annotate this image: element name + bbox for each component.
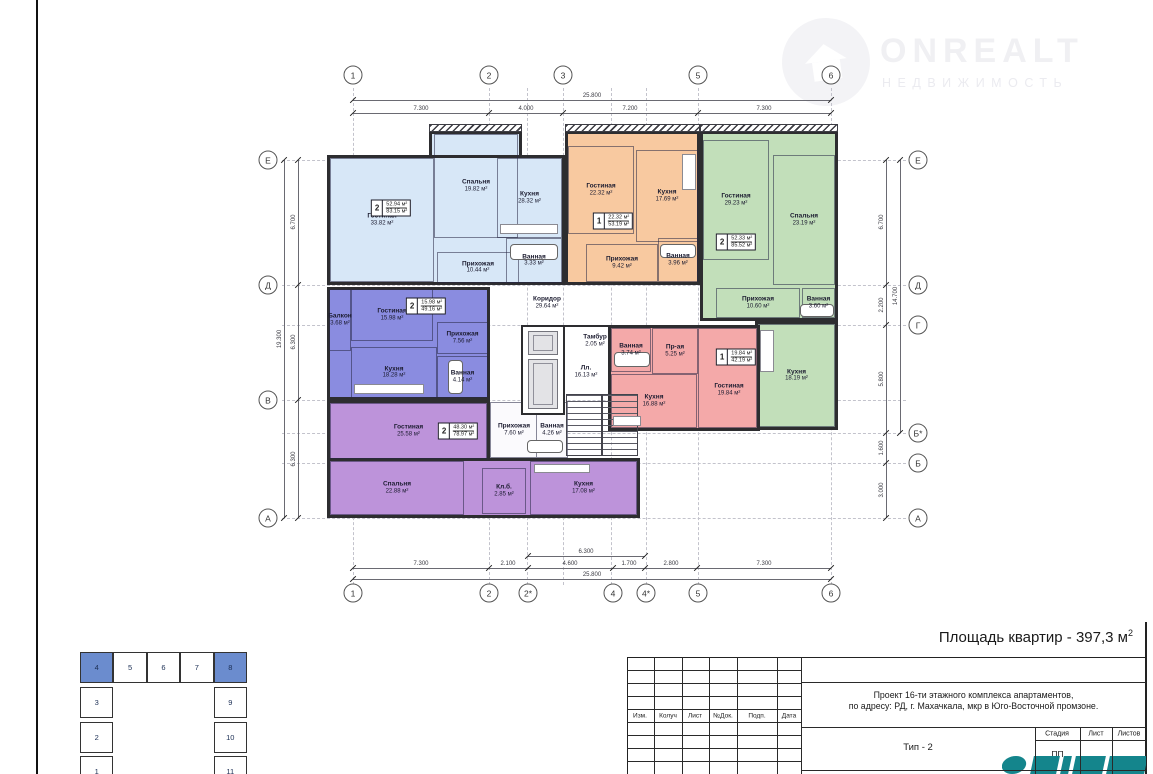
dimension-label: 2.800 (663, 561, 678, 567)
apartment-badge: 252.94 м²83.15 м² (371, 200, 411, 217)
axis-marker-left: Д (259, 276, 278, 295)
total-area-text: Площадь квартир - 397,3 м (939, 629, 1128, 646)
room-label: Кл.б.2.85 м² (494, 484, 513, 499)
axis-marker-bottom: 6 (822, 584, 841, 603)
dimension-label-v: 6.700 (879, 214, 885, 229)
dimension-label: 25.800 (583, 93, 601, 99)
room-area: 17.08 м² (572, 488, 595, 495)
badge-total-area: 49.16 м² (421, 307, 442, 313)
room-area: 22.88 м² (383, 488, 411, 495)
bathtub (527, 440, 563, 453)
dimension-label: 4.000 (518, 106, 533, 112)
dimension-line (353, 100, 831, 101)
room-label: Спальня23.19 м² (790, 213, 818, 228)
dimension-label-v: 3.000 (879, 482, 885, 497)
dimension-label: 2.100 (500, 561, 515, 567)
room-label: Прихожая9.42 м² (606, 256, 638, 271)
badge-total-area: 78.97 м² (453, 432, 474, 438)
room-area: 29.64 м² (533, 303, 561, 310)
room-name: Спальня (383, 481, 411, 489)
kitchen-counter (682, 154, 696, 190)
axis-marker-top: 2 (480, 66, 499, 85)
room-area: 7.60 м² (498, 430, 530, 437)
room-label: Пр-ая5.25 м² (665, 344, 684, 359)
badge-room-count: 1 (717, 350, 728, 365)
room-label: Кухня18.28 м² (383, 365, 406, 380)
room-name: Кухня (785, 368, 808, 376)
axis-marker-right: А (909, 509, 928, 528)
room-name: Кухня (518, 191, 541, 199)
badge-room-count: 2 (372, 201, 383, 216)
room-name: Ванная (540, 423, 564, 431)
axis-marker-left: Е (259, 151, 278, 170)
room-label: Прихожая7.60 м² (498, 423, 530, 438)
axis-marker-bottom: 2* (519, 584, 538, 603)
room-label: Гостиная19.84 м² (714, 383, 743, 398)
room-name: Кухня (643, 394, 666, 402)
apartment-badge: 215.98 м²49.16 м² (406, 298, 446, 315)
room-label: Гостиная15.98 м² (377, 308, 406, 323)
room-name: Кухня (656, 189, 679, 197)
dimension-label: 1.700 (621, 561, 636, 567)
common-room-label: Тамбур2.05 м² (583, 334, 607, 349)
elevator-cab (528, 331, 558, 355)
dimension-label-v: 6.300 (291, 451, 297, 466)
kitchen-counter (500, 224, 558, 234)
room-name: Балкон (328, 313, 351, 321)
total-area-label: Площадь квартир - 397,3 м2 (905, 628, 1133, 646)
balcony-hatch (429, 124, 522, 132)
room-area: 19.84 м² (714, 390, 743, 397)
kitchen-counter (760, 330, 774, 372)
elevator-cab-inner (533, 363, 553, 405)
balcony-hatch (565, 124, 700, 132)
room-name: Ванная (807, 296, 831, 304)
floor-plan: Гостиная33.82 м²Спальня19.82 м²Кухня28.3… (0, 0, 1153, 774)
room-label: Ванная3.33 м² (522, 253, 546, 268)
dimension-label-v: 6.300 (291, 334, 297, 349)
dimension-label: 7.300 (756, 106, 771, 112)
badge-room-count: 2 (717, 235, 728, 250)
apartment-badge: 252.33 м²85.52 м² (716, 234, 756, 251)
total-area-sup: 2 (1128, 628, 1133, 638)
room-label: Ванная3.96 м² (666, 253, 690, 268)
room-label: Кухня17.69 м² (656, 189, 679, 204)
room-name: Гостиная (377, 308, 406, 316)
dimension-label-v: 5.800 (879, 371, 885, 386)
room-name: Прихожая (462, 260, 494, 268)
room-area: 18.19 м² (785, 376, 808, 383)
room-area: 16.88 м² (643, 401, 666, 408)
room-area: 10.44 м² (462, 268, 494, 275)
room-label: Ванная4.14 м² (451, 370, 475, 385)
room-label: Балкон3.68 м² (328, 313, 351, 328)
elevator-cab-inner (533, 335, 553, 351)
axis-marker-top: 6 (822, 66, 841, 85)
room-name: Ванная (522, 253, 546, 261)
dimension-line (284, 160, 285, 518)
badge-room-count: 1 (594, 214, 605, 229)
axis-marker-bottom: 2 (480, 584, 499, 603)
room-label: Спальня22.88 м² (383, 481, 411, 496)
room-name: Кухня (572, 481, 595, 489)
badge-living-area: 52.33 м² (731, 236, 752, 243)
dimension-line (900, 160, 901, 433)
axis-marker-top: 3 (554, 66, 573, 85)
room-label: Ванная4.26 м² (540, 423, 564, 438)
apartment-badge: 122.32 м²53.19 м² (593, 213, 633, 230)
room-name: Прихожая (742, 296, 774, 304)
room-label: Прихожая10.60 м² (742, 296, 774, 311)
dimension-line (353, 113, 831, 114)
room-area: 17.69 м² (656, 196, 679, 203)
room-area: 3.68 м² (328, 320, 351, 327)
room-area: 3.96 м² (666, 260, 690, 267)
room-area: 16.13 м² (575, 372, 598, 379)
dimension-line (353, 579, 831, 580)
room-area: 3.33 м² (522, 261, 546, 268)
floor-plan-sheet: ONREALT НЕДВИЖИМОСТЬ Гостиная33.82 м²Спа… (0, 0, 1153, 774)
badge-living-area: 15.98 м² (421, 300, 442, 307)
dimension-label: 7.300 (756, 561, 771, 567)
room-area: 4.26 м² (540, 430, 564, 437)
dimension-label: 4.600 (562, 561, 577, 567)
room-name: Кл.б. (494, 484, 513, 492)
wall-segment (565, 325, 610, 327)
room-area: 4.14 м² (451, 377, 475, 384)
room-name: Ванная (666, 253, 690, 261)
room-area: 18.28 м² (383, 373, 406, 380)
badge-living-area: 19.84 м² (731, 351, 752, 358)
dimension-label-v: 14.700 (893, 287, 899, 305)
dimension-label: 7.300 (413, 561, 428, 567)
room-label: Гостиная25.58 м² (394, 424, 423, 439)
axis-marker-bottom: 5 (689, 584, 708, 603)
badge-room-count: 2 (439, 424, 450, 439)
badge-total-area: 42.19 м² (731, 358, 752, 364)
dimension-label-v: 19.300 (277, 330, 283, 348)
room-label: Ванная3.60 м² (807, 296, 831, 311)
room-area: 2.85 м² (494, 491, 513, 498)
apartment-badge: 248.30 м²78.97 м² (438, 423, 478, 440)
common-room-label: Коридор29.64 м² (533, 296, 561, 311)
room-name: Гостиная (394, 424, 423, 432)
common-room-label: Лл.16.13 м² (575, 365, 598, 380)
kitchen-counter (354, 384, 424, 394)
axis-marker-right: Е (909, 151, 928, 170)
badge-living-area: 22.32 м² (608, 215, 629, 222)
room-area: 15.98 м² (377, 315, 406, 322)
room-area: 33.82 м² (367, 220, 396, 227)
stairs-divider (601, 394, 603, 456)
room-name: Лл. (575, 365, 598, 373)
axis-marker-right: Б (909, 454, 928, 473)
room-name: Ванная (451, 370, 475, 378)
kitchen-counter (534, 464, 590, 473)
room-label: Кухня18.19 м² (785, 368, 808, 383)
axis-marker-top: 5 (689, 66, 708, 85)
room-name: Прихожая (498, 423, 530, 431)
dimension-label: 7.300 (413, 106, 428, 112)
badge-total-area: 83.15 м² (386, 209, 407, 215)
room-name: Гостиная (586, 183, 615, 191)
room-area: 9.42 м² (606, 263, 638, 270)
badge-total-area: 53.19 м² (608, 222, 629, 228)
axis-marker-right: Д (909, 276, 928, 295)
room-name: Тамбур (583, 334, 607, 342)
axis-marker-right: Г (909, 316, 928, 335)
balcony-hatch (700, 124, 838, 132)
elevator-cab (528, 359, 558, 409)
room-name: Прихожая (606, 256, 638, 264)
axis-marker-bottom: 4* (637, 584, 656, 603)
room (698, 328, 757, 428)
room-area: 23.19 м² (790, 220, 818, 227)
room-area: 3.74 м² (619, 350, 643, 357)
axis-grid-line-horizontal (282, 518, 906, 519)
room-area: 22.32 м² (586, 190, 615, 197)
axis-marker-bottom: 4 (604, 584, 623, 603)
dimension-tick (642, 553, 648, 559)
dimension-line (528, 556, 645, 557)
kitchen-counter (613, 416, 641, 426)
room-name: Кухня (383, 365, 406, 373)
room-label: Прихожая10.44 м² (462, 260, 494, 275)
axis-marker-left: А (259, 509, 278, 528)
badge-living-area: 48.30 м² (453, 425, 474, 432)
room-label: Кухня17.08 м² (572, 481, 595, 496)
dimension-label: 7.200 (622, 106, 637, 112)
dimension-label-v: 6.700 (291, 214, 297, 229)
axis-marker-left: В (259, 391, 278, 410)
room-area: 28.32 м² (518, 198, 541, 205)
room-name: Коридор (533, 296, 561, 304)
dimension-line (886, 160, 887, 518)
dimension-label-v: 1.600 (879, 440, 885, 455)
axis-marker-top: 1 (344, 66, 363, 85)
room-name: Спальня (462, 179, 490, 187)
room-area: 19.82 м² (462, 186, 490, 193)
room-name: Прихожая (446, 331, 478, 339)
room-area: 29.23 м² (721, 200, 750, 207)
room-label: Прихожая7.56 м² (446, 331, 478, 346)
apartment-badge: 119.84 м²42.19 м² (716, 349, 756, 366)
room-label: Кухня28.32 м² (518, 191, 541, 206)
room-area: 10.60 м² (742, 303, 774, 310)
dimension-label-v: 2.200 (879, 297, 885, 312)
room-label: Гостиная22.32 м² (586, 183, 615, 198)
badge-room-count: 2 (407, 299, 418, 314)
room-name: Пр-ая (665, 344, 684, 352)
room-name: Ванная (619, 343, 643, 351)
room-label: Кухня16.88 м² (643, 394, 666, 409)
room-name: Гостиная (714, 383, 743, 391)
dimension-label: 6.300 (578, 549, 593, 555)
room-label: Спальня19.82 м² (462, 179, 490, 194)
axis-marker-right: Б* (909, 424, 928, 443)
room-area: 3.60 м² (807, 303, 831, 310)
axis-marker-bottom: 1 (344, 584, 363, 603)
badge-living-area: 52.94 м² (386, 202, 407, 209)
room-area: 25.58 м² (394, 431, 423, 438)
dimension-line (353, 568, 831, 569)
room-area: 7.56 м² (446, 338, 478, 345)
room-label: Ванная3.74 м² (619, 343, 643, 358)
room-area: 5.25 м² (665, 351, 684, 358)
badge-total-area: 85.52 м² (731, 243, 752, 249)
room-name: Гостиная (721, 193, 750, 201)
dimension-line (298, 160, 299, 518)
dimension-label: 25.800 (583, 572, 601, 578)
room-label: Гостиная29.23 м² (721, 193, 750, 208)
room-name: Спальня (790, 213, 818, 221)
room-area: 2.05 м² (583, 341, 607, 348)
